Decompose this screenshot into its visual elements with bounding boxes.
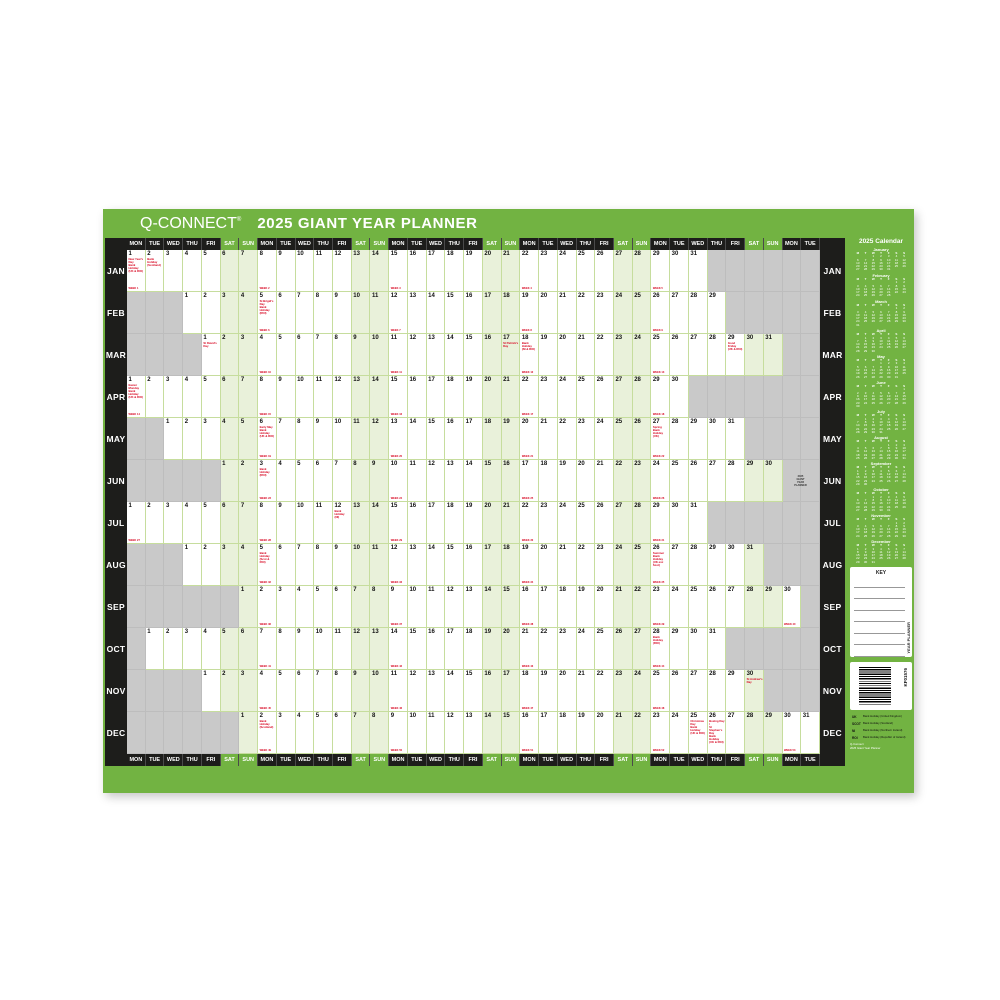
- date-number: 17: [541, 587, 557, 593]
- month-label-left-sep: SEP: [105, 586, 127, 628]
- date-number: 26: [615, 629, 631, 635]
- barcode-icon: [859, 667, 891, 705]
- date-number: 6: [316, 461, 332, 467]
- date-number: 31: [690, 503, 706, 509]
- inactive-cell: [689, 376, 708, 418]
- day-cell: 25: [670, 460, 689, 502]
- day-cell: 25WEEK 13: [651, 334, 670, 376]
- inactive-cell: [183, 586, 202, 628]
- holiday-note: SummerBank Holiday(UK exc Scot): [653, 552, 669, 567]
- date-number: 31: [747, 545, 763, 551]
- date-number: 18: [447, 377, 463, 383]
- day-cell: 19: [577, 586, 596, 628]
- inactive-cell: [801, 502, 820, 544]
- date-number: 27: [672, 293, 688, 299]
- day-cell: 21WEEK 43: [520, 628, 539, 670]
- day-header-tue: TUE: [277, 754, 296, 766]
- date-number: 22: [522, 377, 538, 383]
- day-header-mon: MON: [783, 754, 802, 766]
- week-number: WEEK 10: [260, 371, 271, 374]
- day-cell: 5: [296, 460, 315, 502]
- date-number: 8: [372, 587, 388, 593]
- date-number: 23: [615, 335, 631, 341]
- date-number: 22: [559, 419, 575, 425]
- grid-corner-bottom: [820, 754, 845, 766]
- date-number: 13: [391, 419, 407, 425]
- day-cell: 31: [708, 628, 727, 670]
- date-number: 28: [672, 419, 688, 425]
- date-number: 15: [503, 713, 519, 719]
- day-cell: 10: [370, 334, 389, 376]
- date-number: 7: [241, 377, 257, 383]
- holiday-note: Bank Holiday(NI & ROI): [522, 342, 538, 351]
- date-number: 11: [335, 629, 351, 635]
- day-cell: 23: [558, 628, 577, 670]
- holiday-note: Good Friday(UK & ROI): [728, 342, 744, 351]
- day-cell: 2: [221, 670, 240, 712]
- day-cell: 16: [445, 418, 464, 460]
- month-label-right-may: MAY: [820, 418, 845, 460]
- day-cell: 7: [277, 418, 296, 460]
- key-line: [854, 621, 905, 622]
- date-number: 11: [316, 251, 332, 257]
- date-number: 3: [203, 419, 219, 425]
- date-number: 19: [466, 503, 482, 509]
- key-line: [854, 633, 905, 634]
- date-number: 3: [241, 671, 257, 677]
- barcode-box: KF01576: [850, 662, 912, 710]
- day-header-sat: SAT: [745, 754, 764, 766]
- month-label-left-jul: JUL: [105, 502, 127, 544]
- inactive-cell: [801, 628, 820, 670]
- day-cell: 2: [221, 334, 240, 376]
- inactive-cell: [745, 292, 764, 334]
- day-cell: 28: [670, 418, 689, 460]
- week-number: WEEK 47: [522, 707, 533, 710]
- day-cell: 30WEEK 40: [783, 586, 802, 628]
- week-number: WEEK 2: [260, 287, 270, 290]
- date-number: 3: [166, 503, 182, 509]
- date-number: 4: [241, 545, 257, 551]
- day-header-sun: SUN: [370, 754, 389, 766]
- inactive-cell: [783, 250, 802, 292]
- date-number: 30: [672, 251, 688, 257]
- date-number: 17: [484, 293, 500, 299]
- date-number: 25: [578, 251, 594, 257]
- day-header-sun: SUN: [502, 754, 521, 766]
- grid-corner-top: [105, 238, 127, 250]
- inactive-cell: [146, 670, 165, 712]
- month-label-right-aug: AUG: [820, 544, 845, 586]
- date-number: 5: [297, 461, 313, 467]
- date-number: 23: [615, 671, 631, 677]
- inactive-cell: [764, 628, 783, 670]
- day-header-fri: FRI: [726, 238, 745, 250]
- date-number: 12: [428, 461, 444, 467]
- date-number: 31: [709, 629, 725, 635]
- month-label-right-apr: APR: [820, 376, 845, 418]
- date-number: 29: [709, 545, 725, 551]
- day-cell: 10: [408, 712, 427, 754]
- date-number: 23: [541, 251, 557, 257]
- date-number: 10: [409, 713, 425, 719]
- day-cell: 7: [239, 376, 258, 418]
- date-number: 6: [335, 713, 351, 719]
- holiday-note: Bank Holiday(Scotland): [147, 258, 163, 267]
- day-cell: 5: [202, 376, 221, 418]
- day-header-thu: THU: [577, 238, 596, 250]
- sidebar-calendar-title: 2025 Calendar: [850, 238, 912, 245]
- date-number: 14: [372, 377, 388, 383]
- day-cell: 10: [296, 376, 315, 418]
- day-cell: 17: [483, 292, 502, 334]
- day-cell: 20: [558, 670, 577, 712]
- day-cell: 17: [539, 586, 558, 628]
- inactive-cell: [127, 544, 146, 586]
- inactive-cell: [221, 712, 240, 754]
- date-number: 14: [428, 293, 444, 299]
- date-number: 10: [353, 545, 369, 551]
- day-header-wed: WED: [427, 754, 446, 766]
- day-cell: 2: [183, 418, 202, 460]
- week-number: WEEK 26: [653, 497, 664, 500]
- day-header-tue: TUE: [801, 238, 820, 250]
- day-header-fri: FRI: [333, 238, 352, 250]
- day-header-mon: MON: [258, 754, 277, 766]
- day-cell: 14: [445, 670, 464, 712]
- week-number: WEEK 9: [653, 329, 663, 332]
- month-label-right-oct: OCT: [820, 628, 845, 670]
- day-cell: 13: [427, 670, 446, 712]
- date-number: 18: [503, 293, 519, 299]
- inactive-cell: [745, 502, 764, 544]
- date-number: 4: [260, 671, 276, 677]
- day-cell: 16: [408, 376, 427, 418]
- mini-month-february: FebruaryMTWTFSS1234567891011121314151617…: [850, 273, 912, 298]
- date-number: 21: [503, 503, 519, 509]
- week-number: WEEK 29: [391, 539, 402, 542]
- key-line: [854, 656, 905, 657]
- footer-note: Q-Connect2025 Giant Year Planner: [850, 743, 912, 750]
- date-number: 28: [747, 587, 763, 593]
- week-number: WEEK 31: [653, 539, 664, 542]
- day-cell: 12: [370, 418, 389, 460]
- week-number: WEEK 35: [653, 581, 664, 584]
- date-number: 13: [428, 671, 444, 677]
- day-cell: 11: [370, 544, 389, 586]
- key-box: KEY YEAR PLANNER: [850, 567, 912, 657]
- day-cell: 14: [483, 712, 502, 754]
- day-cell: 27SpringBank Holiday(UK)WEEK 22: [651, 418, 670, 460]
- date-number: 28: [690, 545, 706, 551]
- date-number: 24: [559, 251, 575, 257]
- week-number: WEEK 27: [129, 539, 140, 542]
- day-cell: 13: [464, 712, 483, 754]
- mini-days: 1234567891011121314151617181920212223242…: [850, 522, 912, 538]
- date-number: 17: [447, 629, 463, 635]
- day-cell: 4: [277, 460, 296, 502]
- date-number: 6: [297, 671, 313, 677]
- month-label-right-jan: JAN: [820, 250, 845, 292]
- date-number: 8: [372, 713, 388, 719]
- day-cell: 26SummerBank Holiday(UK exc Scot)WEEK 35: [651, 544, 670, 586]
- date-number: 4: [185, 503, 201, 509]
- date-number: 25: [597, 629, 613, 635]
- date-number: 4: [222, 419, 238, 425]
- day-cell: 27: [633, 628, 652, 670]
- day-cell: 11: [314, 376, 333, 418]
- day-cell: 28: [708, 334, 727, 376]
- day-cell: 18: [558, 586, 577, 628]
- day-cell: 18Bank Holiday(NI & ROI)WEEK 12: [520, 334, 539, 376]
- day-cell: 7: [239, 502, 258, 544]
- date-number: 19: [484, 629, 500, 635]
- date-number: 15: [447, 545, 463, 551]
- brand-logo: Q-CONNECT®: [140, 215, 241, 233]
- day-cell: 14: [427, 292, 446, 334]
- date-number: 18: [541, 461, 557, 467]
- date-number: 24: [578, 629, 594, 635]
- date-number: 11: [353, 419, 369, 425]
- date-number: 21: [615, 587, 631, 593]
- day-cell: 7: [296, 544, 315, 586]
- inactive-cell: [764, 376, 783, 418]
- day-cell: 20: [483, 502, 502, 544]
- inactive-cell: [146, 418, 165, 460]
- day-cell: 19: [464, 250, 483, 292]
- date-number: 30: [709, 419, 725, 425]
- day-cell: 10: [408, 586, 427, 628]
- day-cell: 27: [708, 460, 727, 502]
- date-number: 3: [166, 377, 182, 383]
- sidebar: 2025 Calendar JanuaryMTWTFSS123456789101…: [850, 238, 912, 786]
- date-number: 28: [690, 293, 706, 299]
- date-number: 20: [578, 461, 594, 467]
- day-cell: 20WEEK 21: [520, 418, 539, 460]
- date-number: 28: [634, 377, 650, 383]
- day-cell: 27: [726, 712, 745, 754]
- day-cell: 25Christmas DayBank Holiday(UK & ROI): [689, 712, 708, 754]
- day-cell: 20: [502, 628, 521, 670]
- date-number: 27: [672, 545, 688, 551]
- day-cell: 22WEEK 17: [520, 376, 539, 418]
- legend-abbr: UK: [852, 715, 863, 719]
- mini-days: 1234567891011121314151617181920212223242…: [850, 548, 912, 564]
- day-cell: 30: [670, 502, 689, 544]
- day-header-sun: SUN: [502, 238, 521, 250]
- date-number: 7: [241, 251, 257, 257]
- date-number: 9: [335, 293, 351, 299]
- week-number: WEEK 16: [391, 413, 402, 416]
- year-planner-poster: Q-CONNECT® 2025 GIANT YEAR PLANNER MONTU…: [103, 209, 914, 793]
- day-cell: 1: [146, 628, 165, 670]
- date-number: 16: [409, 251, 425, 257]
- day-cell: 14: [370, 376, 389, 418]
- day-cell: 10: [296, 250, 315, 292]
- day-header-sat: SAT: [614, 754, 633, 766]
- day-cell: 22WEEK 4: [520, 250, 539, 292]
- date-number: 2: [203, 545, 219, 551]
- day-cell: 25: [577, 250, 596, 292]
- week-number: WEEK 46: [391, 707, 402, 710]
- date-number: 16: [484, 671, 500, 677]
- grid-corner-top: [820, 238, 845, 250]
- date-number: 13: [409, 293, 425, 299]
- day-cell: 13: [408, 544, 427, 586]
- date-number: 29: [653, 377, 669, 383]
- date-number: 24: [634, 335, 650, 341]
- date-number: 26: [690, 461, 706, 467]
- day-header-wed: WED: [164, 238, 183, 250]
- day-cell: 5: [202, 250, 221, 292]
- inactive-cell: [726, 250, 745, 292]
- mini-month-june: JuneMTWTFSS12345678910111213141516171819…: [850, 380, 912, 408]
- date-number: 24: [653, 461, 669, 467]
- inactive-cell: [183, 670, 202, 712]
- day-cell: 9WEEK 37: [389, 586, 408, 628]
- day-cell: 8: [370, 586, 389, 628]
- planner-note: 2025GIANTYEARPLANNER: [782, 460, 819, 502]
- date-number: 25: [653, 671, 669, 677]
- day-cell: 17St Patrick's Day: [502, 334, 521, 376]
- day-cell: 9: [277, 250, 296, 292]
- date-number: 30: [672, 503, 688, 509]
- month-label-right-jun: JUN: [820, 460, 845, 502]
- day-header-thu: THU: [445, 238, 464, 250]
- day-cell: 9: [277, 502, 296, 544]
- day-header-thu: THU: [314, 238, 333, 250]
- date-number: 7: [353, 587, 369, 593]
- day-cell: 29: [708, 292, 727, 334]
- mini-calendars: JanuaryMTWTFSS12345678910111213141516171…: [850, 247, 912, 564]
- day-cell: 5: [202, 502, 221, 544]
- day-cell: 29: [745, 460, 764, 502]
- holiday-note: St Brigid's DayBank Holiday(ROI): [260, 300, 276, 315]
- date-number: 19: [522, 545, 538, 551]
- date-number: 8: [335, 671, 351, 677]
- day-cell: 28: [633, 250, 652, 292]
- day-cell: 17WEEK 25: [520, 460, 539, 502]
- day-cell: 15: [408, 628, 427, 670]
- date-number: 6: [241, 629, 257, 635]
- day-cell: 5: [221, 628, 240, 670]
- date-number: 3: [241, 335, 257, 341]
- day-cell: 8: [370, 712, 389, 754]
- day-cell: 5: [277, 670, 296, 712]
- date-number: 15: [503, 587, 519, 593]
- inactive-cell: [801, 544, 820, 586]
- day-cell: 20: [483, 376, 502, 418]
- week-number: WEEK 37: [391, 623, 402, 626]
- day-cell: 6: [333, 586, 352, 628]
- mini-month-july: JulyMTWTFSS12345678910111213141516171819…: [850, 409, 912, 434]
- day-header-wed: WED: [427, 238, 446, 250]
- month-label-left-oct: OCT: [105, 628, 127, 670]
- date-number: 23: [597, 545, 613, 551]
- day-cell: 20: [483, 250, 502, 292]
- date-number: 9: [391, 713, 407, 719]
- day-cell: 28: [689, 544, 708, 586]
- inactive-cell: [708, 250, 727, 292]
- date-number: 5: [278, 671, 294, 677]
- day-cell: 30: [708, 418, 727, 460]
- day-cell: 17: [427, 502, 446, 544]
- day-cell: 26: [670, 670, 689, 712]
- day-cell: 14: [370, 502, 389, 544]
- week-number: WEEK 8: [522, 329, 532, 332]
- day-cell: 27: [670, 544, 689, 586]
- day-cell: 21: [614, 586, 633, 628]
- date-number: 9: [353, 671, 369, 677]
- day-cell: 3: [221, 544, 240, 586]
- day-header-sun: SUN: [764, 754, 783, 766]
- date-number: 21: [578, 671, 594, 677]
- day-cell: 22: [577, 292, 596, 334]
- date-number: 11: [409, 461, 425, 467]
- day-cell: 26WEEK 9: [651, 292, 670, 334]
- day-cell: 26: [708, 586, 727, 628]
- date-number: 14: [484, 713, 500, 719]
- day-cell: 2Bank Holiday(Scotland)WEEK 49: [258, 712, 277, 754]
- day-cell: 8: [314, 292, 333, 334]
- month-label-left-nov: NOV: [105, 670, 127, 712]
- month-label-right-jul: JUL: [820, 502, 845, 544]
- day-cell: 11: [370, 292, 389, 334]
- date-number: 14: [447, 335, 463, 341]
- day-cell: 19WEEK 8: [520, 292, 539, 334]
- day-cell: 19: [539, 670, 558, 712]
- day-header-sat: SAT: [352, 238, 371, 250]
- inactive-cell: [764, 292, 783, 334]
- date-number: 10: [391, 461, 407, 467]
- day-cell: 22WEEK 30: [520, 502, 539, 544]
- day-cell: 23: [539, 376, 558, 418]
- brand-name: Q-CONNECT: [140, 215, 237, 232]
- holiday-legend: UKBank Holiday (United Kingdom)SCOTBank …: [850, 715, 912, 740]
- date-number: 22: [522, 251, 538, 257]
- date-number: 30: [784, 713, 800, 719]
- day-cell: 24: [577, 628, 596, 670]
- date-number: 3: [166, 251, 182, 257]
- date-number: 5: [316, 713, 332, 719]
- day-header-fri: FRI: [726, 754, 745, 766]
- day-cell: 23: [539, 250, 558, 292]
- date-number: 21: [541, 419, 557, 425]
- date-number: 27: [615, 251, 631, 257]
- day-cell: 23: [595, 544, 614, 586]
- week-number: WEEK 40: [784, 623, 795, 626]
- day-cell: 11: [333, 628, 352, 670]
- date-number: 26: [634, 419, 650, 425]
- date-number: 31: [690, 251, 706, 257]
- week-number: WEEK 11: [391, 371, 402, 374]
- date-number: 24: [615, 545, 631, 551]
- date-number: 21: [615, 713, 631, 719]
- week-number: WEEK 36: [260, 623, 271, 626]
- day-cell: 28: [726, 460, 745, 502]
- date-number: 30: [747, 335, 763, 341]
- day-header-sat: SAT: [221, 754, 240, 766]
- week-number: WEEK 7: [391, 329, 401, 332]
- month-label-right-nov: NOV: [820, 670, 845, 712]
- date-number: 26: [597, 377, 613, 383]
- day-cell: 26: [689, 460, 708, 502]
- week-number: WEEK 49: [260, 749, 271, 752]
- legend-row: NIBank Holiday (Northern Ireland): [852, 729, 912, 733]
- day-header-sat: SAT: [352, 754, 371, 766]
- date-number: 15: [428, 419, 444, 425]
- date-number: 21: [559, 545, 575, 551]
